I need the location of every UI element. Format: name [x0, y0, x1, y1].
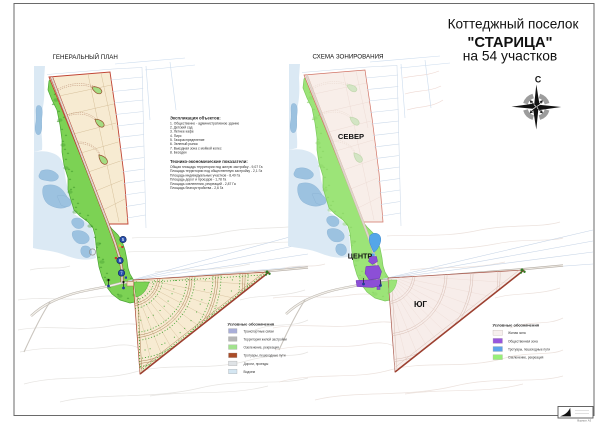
- svg-text:Озеленение, рекреация: Озеленение, рекреация: [508, 356, 544, 360]
- svg-text:Экспликация объектов:: Экспликация объектов:: [170, 116, 221, 121]
- svg-text:Водоем: Водоем: [244, 370, 255, 374]
- svg-text:Формат А3: Формат А3: [577, 419, 592, 423]
- svg-text:Площадь благоустройства - 2,6: Площадь благоустройства - 2,6 Га: [170, 186, 223, 190]
- svg-text:Транспортные связи: Транспортные связи: [244, 329, 274, 333]
- svg-text:ЦЕНТР: ЦЕНТР: [348, 252, 373, 261]
- svg-text:Условные обозначения: Условные обозначения: [228, 322, 275, 327]
- svg-text:Общественная зона: Общественная зона: [508, 339, 538, 343]
- svg-text:Озеленение, рекреация: Озеленение, рекреация: [244, 346, 280, 350]
- svg-text:Жилая зона: Жилая зона: [508, 331, 526, 335]
- svg-text:ГЕНЕРАЛЬНЫЙ ПЛАН: ГЕНЕРАЛЬНЫЙ ПЛАН: [53, 53, 118, 61]
- svg-text:СЕВЕР: СЕВЕР: [338, 132, 364, 141]
- svg-text:8. Беседки: 8. Беседки: [170, 151, 187, 155]
- svg-text:Дороги, проезды: Дороги, проезды: [244, 362, 269, 366]
- svg-text:Коттеджный поселок: Коттеджный поселок: [448, 17, 580, 32]
- svg-text:Технико-экономические показате: Технико-экономические показатели:: [170, 159, 248, 164]
- svg-text:С: С: [535, 75, 542, 85]
- svg-text:Тротуары, пешеходные пути: Тротуары, пешеходные пути: [508, 347, 550, 351]
- svg-text:ЮГ: ЮГ: [414, 300, 427, 309]
- svg-text:Условные обозначения: Условные обозначения: [493, 323, 540, 328]
- svg-text:Территория жилой застройки: Территория жилой застройки: [244, 337, 287, 341]
- svg-text:СХЕМА ЗОНИРОВАНИЯ: СХЕМА ЗОНИРОВАНИЯ: [313, 53, 384, 60]
- svg-text:на 54 участков: на 54 участков: [463, 49, 557, 64]
- svg-text:Тротуары, пешеходные пути: Тротуары, пешеходные пути: [244, 354, 286, 358]
